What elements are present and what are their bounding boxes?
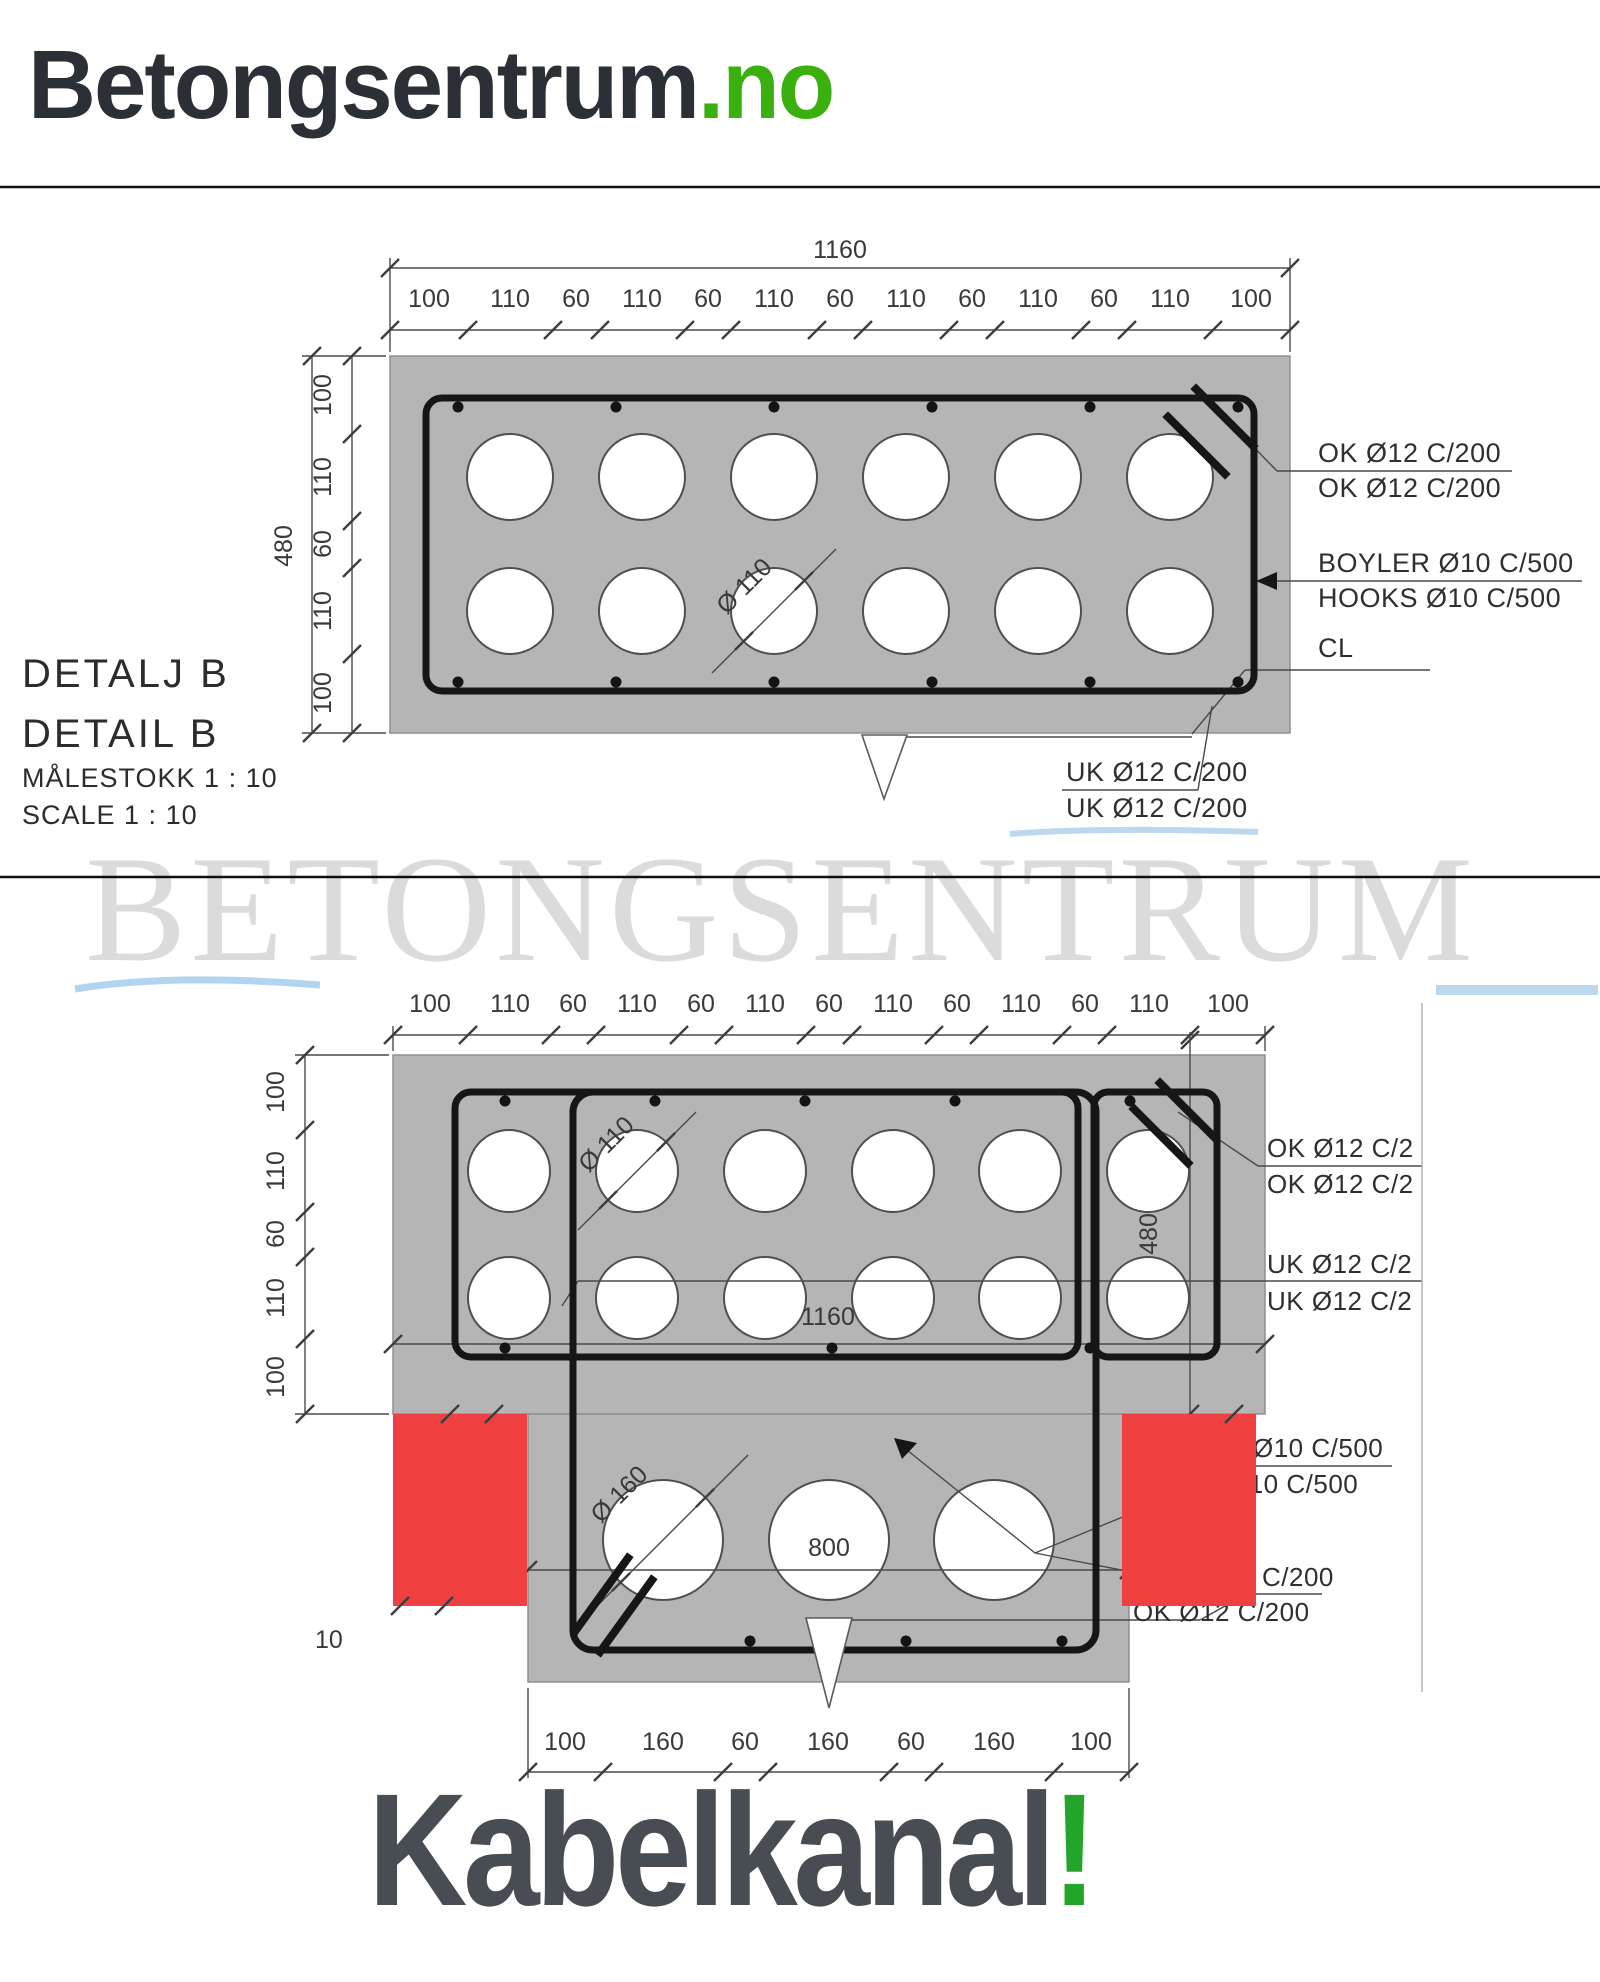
d2-top-dim: 60 — [1071, 990, 1099, 1018]
d2-left-dim: 110 — [262, 1278, 290, 1318]
d2-red-block-left — [393, 1414, 527, 1606]
d2-ann-d10-top: Ø10 C/500 — [1253, 1433, 1383, 1463]
d1-top-dim: 60 — [958, 285, 986, 313]
d2-bottom-dim: 60 — [897, 1728, 925, 1756]
d1-top-dim: 100 — [408, 285, 450, 313]
d1-ann-cl: CL — [1318, 633, 1354, 663]
logo-tld: .no — [698, 30, 833, 139]
d2-top-dim: 60 — [559, 990, 587, 1018]
d1-scale-no: MÅLESTOKK 1 : 10 — [22, 762, 278, 793]
d2-top-dim: 100 — [1207, 990, 1249, 1018]
d1-top-dim: 110 — [1150, 285, 1190, 313]
d2-bottom-dim: 160 — [973, 1728, 1015, 1756]
d1-section-marker — [862, 735, 907, 799]
d1-ann-hooks: HOOKS Ø10 C/500 — [1318, 583, 1561, 613]
d1-title-en: DETAIL B — [22, 712, 219, 756]
technical-drawing-sheet: 1160 100 110 60 110 60 110 60 110 60 110… — [0, 0, 1600, 1982]
d2-bottom-dim: 100 — [544, 1728, 586, 1756]
d1-total-height: 480 — [270, 525, 298, 567]
page-title-text: Kabelkanal — [368, 1760, 1052, 1939]
d2-ann-uk-top: UK Ø12 C/2 — [1267, 1249, 1412, 1279]
d1-left-dim: 100 — [309, 672, 337, 714]
d1-top-dim: 60 — [826, 285, 854, 313]
d1-top-dim: 60 — [562, 285, 590, 313]
d2-ann-c200: C/200 — [1262, 1562, 1334, 1592]
d1-top-dim: 110 — [622, 285, 662, 313]
d2-left-dim: 100 — [262, 1356, 290, 1398]
d1-ann-uk-top: UK Ø12 C/200 — [1066, 757, 1248, 787]
page-title-exclamation: ! — [1052, 1760, 1094, 1939]
d2-red-block-right — [1122, 1414, 1256, 1606]
d1-top-dim: 110 — [1018, 285, 1058, 313]
drawing-2: 100 110 60 110 60 110 60 110 60 110 60 1… — [262, 990, 1422, 1781]
d2-bottom-dim: 160 — [807, 1728, 849, 1756]
d1-top-dim: 110 — [886, 285, 926, 313]
d1-left-dim: 100 — [309, 374, 337, 416]
d1-top-dim: 110 — [490, 285, 530, 313]
d2-top-dim: 110 — [745, 990, 785, 1018]
d2-bottom-dim: 60 — [731, 1728, 759, 1756]
d2-bottom-dim: 100 — [1070, 1728, 1112, 1756]
d2-inner-width: 1160 — [801, 1303, 855, 1331]
d1-scale-en: SCALE 1 : 10 — [22, 800, 198, 830]
logo: Betongsentrum.no — [28, 36, 833, 133]
d1-left-dim: 110 — [309, 457, 337, 497]
d2-top-dim: 100 — [409, 990, 451, 1018]
d1-ann-ok-top: OK Ø12 C/200 — [1318, 438, 1501, 468]
d1-top-dim: 60 — [694, 285, 722, 313]
d1-top-dim: 100 — [1230, 285, 1272, 313]
drawing-1: 1160 100 110 60 110 60 110 60 110 60 110… — [22, 236, 1582, 830]
d1-top-dim: 60 — [1090, 285, 1118, 313]
d2-left-dim: 110 — [262, 1151, 290, 1191]
d2-bottom-dim: 160 — [642, 1728, 684, 1756]
d2-stray-label: 10 — [315, 1626, 343, 1654]
d1-concrete-slab — [390, 356, 1290, 733]
d1-left-dim: 60 — [309, 530, 337, 558]
page-title: Kabelkanal! — [368, 1766, 1093, 1934]
d2-top-dim: 60 — [815, 990, 843, 1018]
d2-top-dim: 60 — [943, 990, 971, 1018]
d2-top-dim: 60 — [687, 990, 715, 1018]
d2-ann-ok-top: OK Ø12 C/2 — [1267, 1133, 1414, 1163]
d2-left-dim: 100 — [262, 1071, 290, 1113]
blue-marks — [75, 830, 1598, 990]
d2-ann-ok-bottom: OK Ø12 C/2 — [1267, 1169, 1414, 1199]
d2-left-dim: 60 — [262, 1220, 290, 1248]
d2-top-dim: 110 — [490, 990, 530, 1018]
d2-top-dim: 110 — [873, 990, 913, 1018]
d2-top-dim: 110 — [617, 990, 657, 1018]
d1-total-width: 1160 — [813, 236, 867, 264]
d1-ann-boyler: BOYLER Ø10 C/500 — [1318, 548, 1574, 578]
logo-brand: Betongsentrum — [28, 30, 698, 139]
d1-ann-uk-bottom: UK Ø12 C/200 — [1066, 793, 1248, 823]
d1-title-no: DETALJ B — [22, 652, 230, 696]
d1-top-dim: 110 — [754, 285, 794, 313]
d2-top-dim: 110 — [1129, 990, 1169, 1018]
d2-height-label: 480 — [1135, 1213, 1163, 1255]
d2-ann-uk-bottom: UK Ø12 C/2 — [1267, 1286, 1412, 1316]
d1-ann-ok-bottom: OK Ø12 C/200 — [1318, 473, 1501, 503]
d2-top-dim: 110 — [1001, 990, 1041, 1018]
d1-left-dim: 110 — [309, 591, 337, 631]
d2-body-width: 800 — [808, 1534, 850, 1562]
